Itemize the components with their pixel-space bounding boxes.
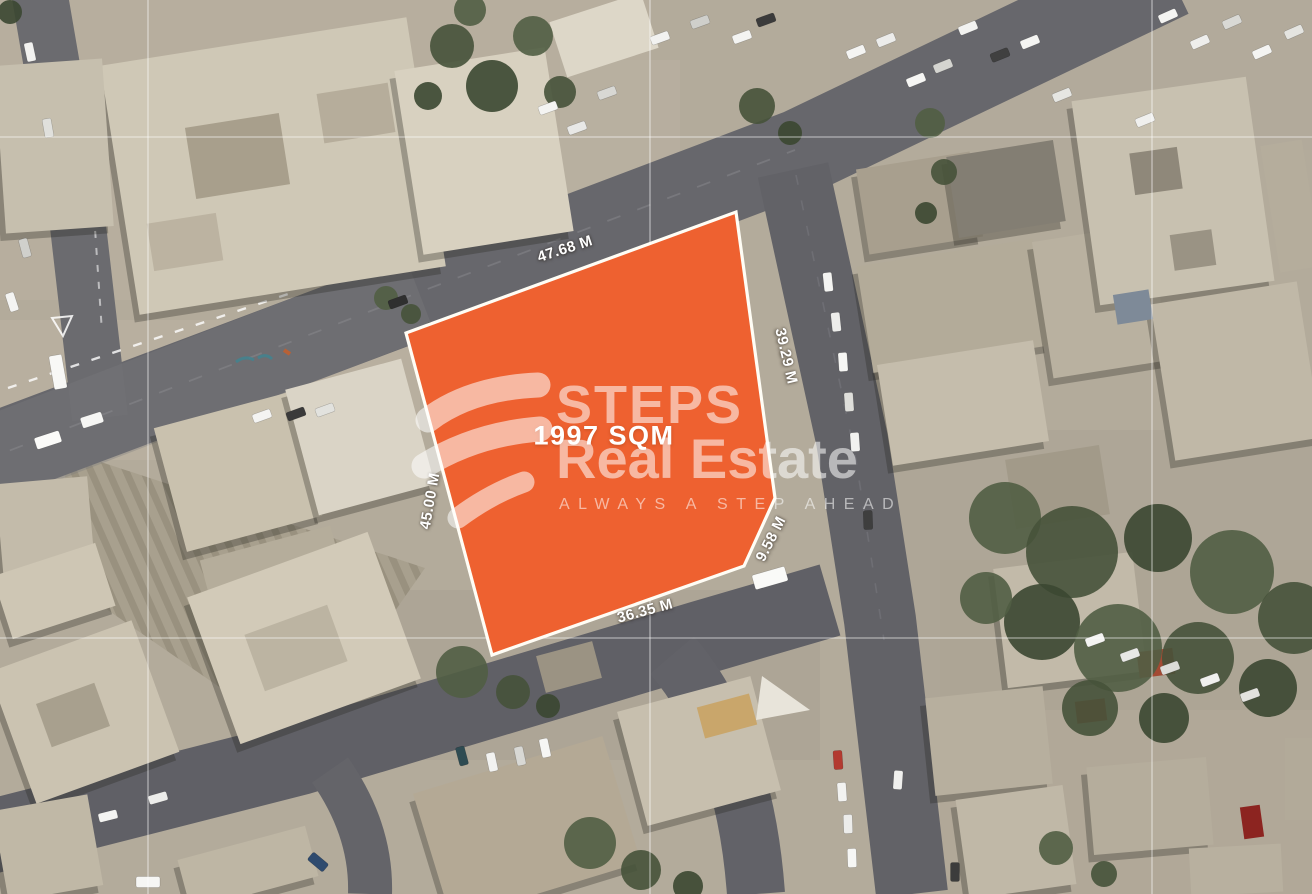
plot-area-label: 1997 SQM bbox=[533, 421, 674, 452]
satellite-plot-advert: 47.68 M 39.29 M 9.58 M 36.35 M 45.00 M 1… bbox=[0, 0, 1312, 894]
